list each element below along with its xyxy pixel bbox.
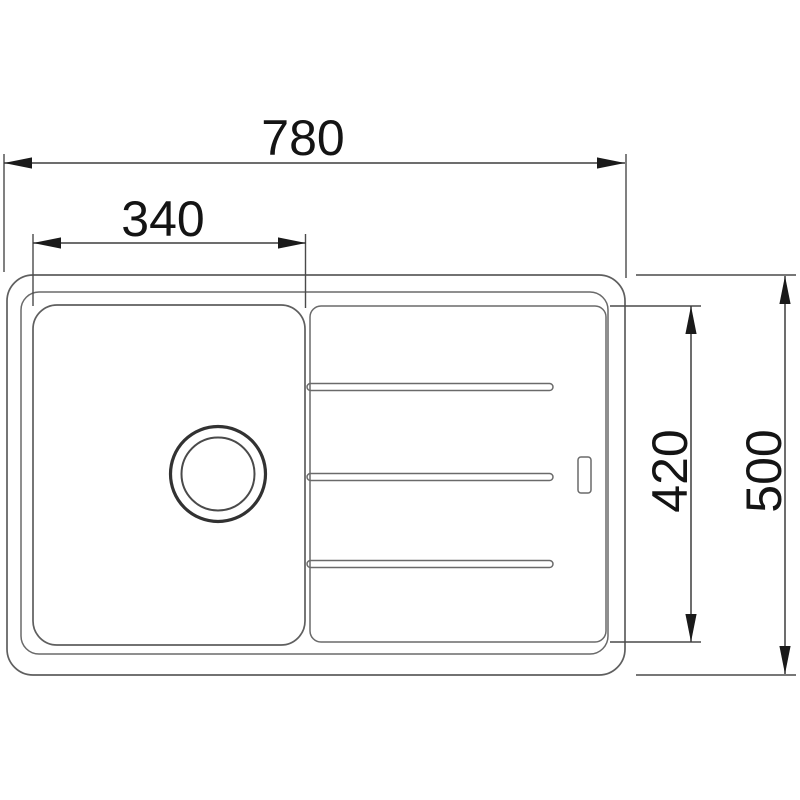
- drainboard-groove-bottom: [307, 561, 553, 568]
- dim-780-arrow-right: [597, 157, 625, 168]
- dim-340-arrow-left: [33, 237, 61, 248]
- dim-500-arrow-top: [779, 276, 790, 304]
- dim-bowl-width: 340: [33, 191, 306, 308]
- dim-780-arrow-left: [4, 157, 32, 168]
- drainboard-groove-top: [307, 384, 553, 391]
- drawing-canvas: 780 340 420 500: [0, 0, 800, 800]
- sink-dimension-drawing: 780 340 420 500: [0, 0, 800, 800]
- dim-500-arrow-bottom: [779, 646, 790, 674]
- dim-420-arrow-top: [685, 306, 696, 334]
- overflow-slot: [578, 457, 591, 493]
- dim-340-label: 340: [121, 191, 204, 247]
- drain-inner-circle: [182, 438, 255, 511]
- dim-340-arrow-right: [278, 237, 306, 248]
- dim-420-label: 420: [642, 429, 698, 512]
- sink-outer-outline: [7, 275, 625, 675]
- dim-420-arrow-bottom: [685, 614, 696, 642]
- dim-500-label: 500: [736, 429, 792, 512]
- sink-body: [7, 275, 625, 675]
- dim-overall-width: 780: [4, 110, 626, 278]
- drain-outer-circle: [171, 427, 266, 522]
- dim-780-label: 780: [261, 110, 344, 166]
- dim-inner-depth: 420: [610, 306, 701, 642]
- drainboard-groove-middle: [307, 474, 553, 481]
